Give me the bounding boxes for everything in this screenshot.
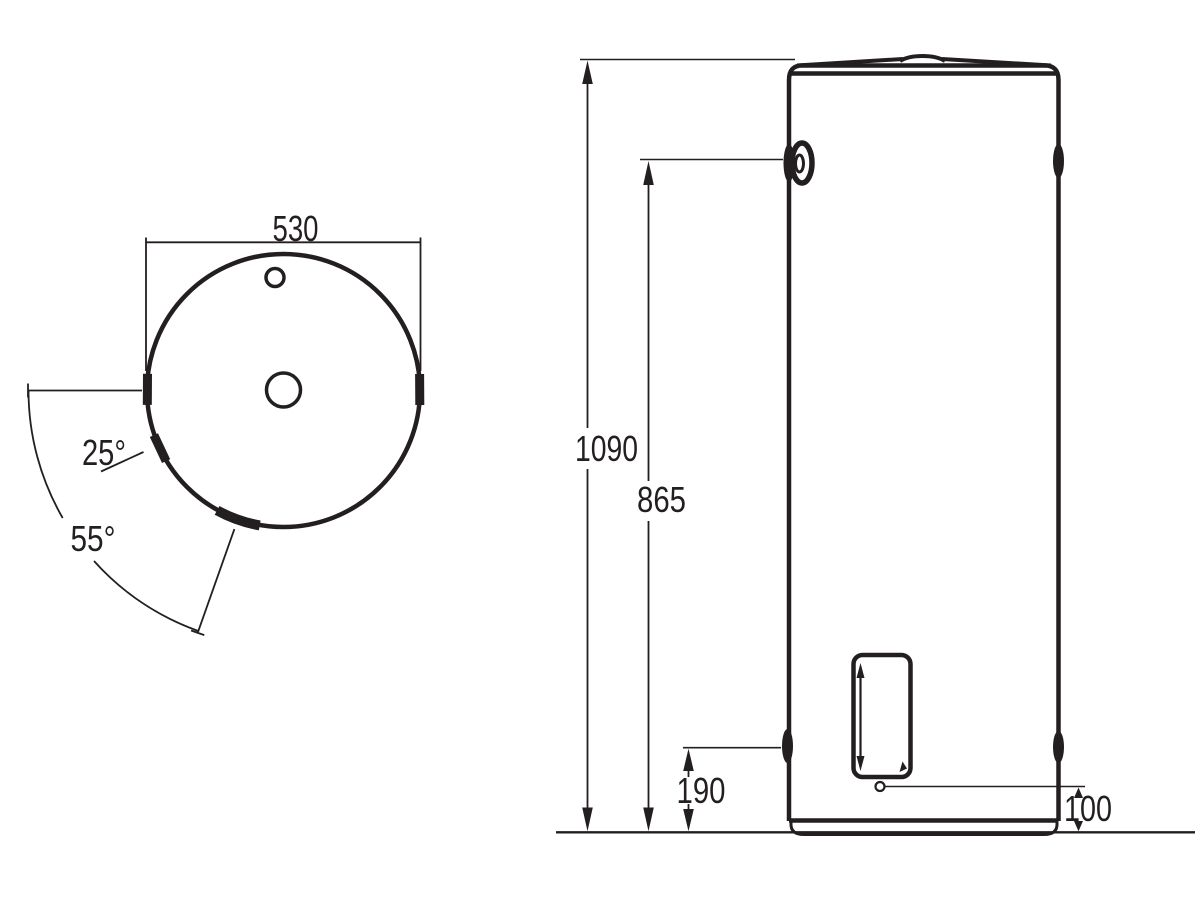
dim-530-line [146, 238, 421, 372]
access-panel-corner-arrow [900, 762, 908, 773]
dim-190-label: 190 [677, 770, 726, 811]
tank-outline-circle [147, 254, 420, 527]
side-connection-boss-inner [796, 155, 804, 172]
dimension-100: 100 [1064, 788, 1112, 832]
access-panel-arrow-down [857, 756, 865, 771]
connection-tick-bottom [217, 510, 260, 525]
dimension-1090: 1090 [575, 60, 795, 832]
angle-arc-55 [94, 561, 198, 631]
dimension-530: 530 [146, 208, 421, 371]
angle-55-label: 55° [71, 518, 116, 559]
dim-865-label: 865 [637, 479, 686, 520]
dim-865-arrow-up [643, 161, 654, 185]
access-panel-arrow-up [857, 663, 865, 678]
angle-25-label: 25° [82, 432, 126, 473]
dimension-190: 190 [677, 748, 782, 832]
top-fitting-small-circle [266, 269, 284, 287]
tank-body-outline [789, 66, 1059, 822]
connection-tick-25deg [154, 435, 166, 461]
access-panel [854, 655, 911, 777]
dimension-865: 865 [637, 160, 783, 832]
fitting-bottom-left [782, 729, 793, 763]
fitting-bottom-right [1053, 731, 1064, 763]
center-fitting-circle [267, 373, 301, 407]
top-view: 530 25° 55° [28, 208, 421, 635]
tank-lid-center-bump [900, 56, 945, 61]
dim-1090-arrow-down [582, 808, 593, 832]
dim-1090-label: 1090 [575, 428, 638, 469]
dim-100-label: 100 [1064, 788, 1112, 829]
angle-reference-line [28, 384, 142, 398]
dim-1090-arrow-up [582, 61, 593, 85]
drain-point-circle [876, 782, 885, 791]
angle-arc-25 [29, 391, 63, 519]
front-view: 1090 865 190 100 [556, 56, 1195, 835]
dim-190-arrow-up [683, 749, 694, 771]
water-heater-dimension-diagram: 530 25° 55° [0, 0, 1200, 900]
technical-drawing-page: 530 25° 55° [0, 0, 1200, 900]
dim-530-label: 530 [273, 208, 319, 249]
dim-190-arrow-down [683, 809, 694, 831]
tank-body [789, 56, 1059, 835]
fitting-top-right [1053, 144, 1064, 178]
angle-55-radial-line [191, 529, 234, 635]
dim-865-arrow-down [643, 808, 654, 832]
